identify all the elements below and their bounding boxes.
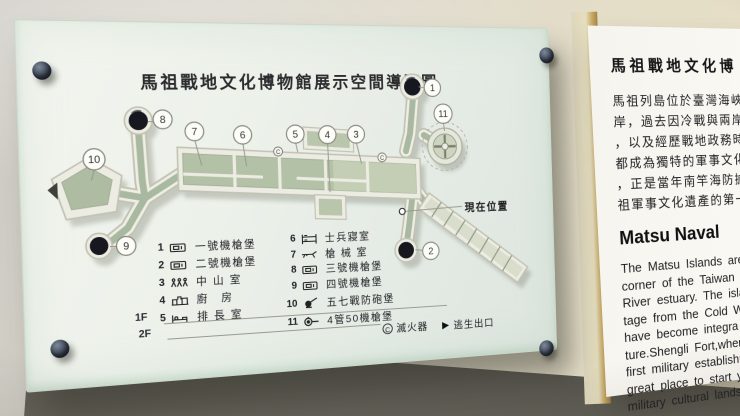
tunnel-floor-plan-map: C C	[15, 20, 556, 391]
gun-turret	[422, 122, 468, 171]
cannon-icon	[302, 296, 322, 309]
svg-text:5: 5	[292, 130, 298, 141]
exit-label: 逃生出口	[453, 315, 494, 332]
svg-text:4: 4	[325, 130, 331, 141]
bunker-icon	[301, 263, 321, 276]
svg-text:C: C	[276, 149, 281, 156]
exit-arrow-icon: ▶	[442, 321, 449, 331]
svg-text:3: 3	[353, 130, 359, 141]
legend-number: 1	[150, 242, 164, 254]
anti-tank-fort	[46, 157, 123, 221]
photo-of-museum-guide-signs: 馬祖戰地文化博物館展示空間導覽圖	[0, 0, 740, 416]
svg-text:1: 1	[430, 84, 436, 94]
legend-number: 6	[283, 234, 296, 246]
kitchen-icon	[170, 293, 191, 307]
legend-number: 4	[151, 295, 165, 307]
svg-text:9: 9	[123, 241, 130, 253]
rifle-icon	[301, 248, 321, 261]
legend-label: 槍 械 室	[325, 244, 368, 261]
legend-number: 7	[283, 249, 296, 261]
floor-marker-2f: 2F	[139, 328, 152, 340]
description-chinese-paragraph: 馬祖列島位於臺灣海峽 岸，過去因冷戰與兩岸 ，以及經歷戰地政務時 都成為獨特的軍…	[612, 90, 740, 216]
svg-text:11: 11	[438, 110, 448, 120]
bunker-icon	[169, 241, 190, 254]
description-english-paragraph: The Matsu Islands are corner of the Taiw…	[620, 245, 740, 415]
zh-line: 馬祖列島位於臺灣海峽	[612, 90, 740, 112]
legend-number: 10	[285, 298, 298, 310]
legend-number: 9	[284, 281, 297, 293]
legend-label: 廚 房	[196, 289, 233, 307]
legend-label: 中 山 室	[196, 271, 242, 289]
legend-number: 2	[150, 260, 164, 272]
legend-label: 五七戰防砲堡	[326, 290, 394, 309]
svg-text:6: 6	[240, 130, 246, 141]
legend-number: 11	[285, 317, 298, 329]
svg-text:8: 8	[160, 115, 167, 126]
description-english-heading: Matsu Naval	[619, 216, 740, 250]
extinguisher-label: 滅火器	[396, 319, 428, 336]
svg-text:10: 10	[88, 155, 101, 167]
guide-map-panel: 馬祖戰地文化博物館展示空間導覽圖	[14, 19, 558, 393]
legend-label: 二號機槍堡	[195, 253, 257, 271]
bunker-icon	[302, 279, 322, 292]
svg-text:7: 7	[191, 127, 197, 138]
bunker-icon	[169, 258, 190, 271]
svg-text:現在位置: 現在位置	[464, 199, 508, 214]
svg-text:2: 2	[428, 247, 434, 258]
bunk-bed-icon	[300, 232, 320, 245]
fort-9	[86, 233, 113, 260]
legend-left-column: 1 一號機槍堡 2 二號機槍堡 3 中 山 室 4 廚 房 5	[150, 234, 284, 328]
description-panel: 馬祖戰地文化博 馬祖列島位於臺灣海峽 岸，過去因冷戰與兩岸 ，以及經歷戰地政務時…	[588, 26, 740, 397]
turret-icon	[303, 315, 323, 328]
legend-number: 3	[151, 278, 165, 290]
legend-right-column: 6 士兵寢室 7 槍 械 室 8 三號機槍堡 9 四號機槍堡 10	[283, 226, 428, 331]
description-title: 馬祖戰地文化博	[610, 52, 740, 76]
extinguisher-icon: C	[382, 323, 393, 334]
legend-label: 一號機槍堡	[195, 236, 257, 254]
floor-marker-1f: 1F	[135, 312, 148, 324]
legend-label: 四號機槍堡	[326, 274, 383, 292]
svg-text:C: C	[380, 155, 385, 162]
fort-8	[124, 107, 153, 135]
assembly-room-icon	[170, 276, 191, 290]
zh-line: 岸，過去因冷戰與兩岸	[613, 109, 740, 133]
legend-number: 8	[284, 265, 297, 277]
legend-label: 士兵寢室	[324, 229, 370, 246]
